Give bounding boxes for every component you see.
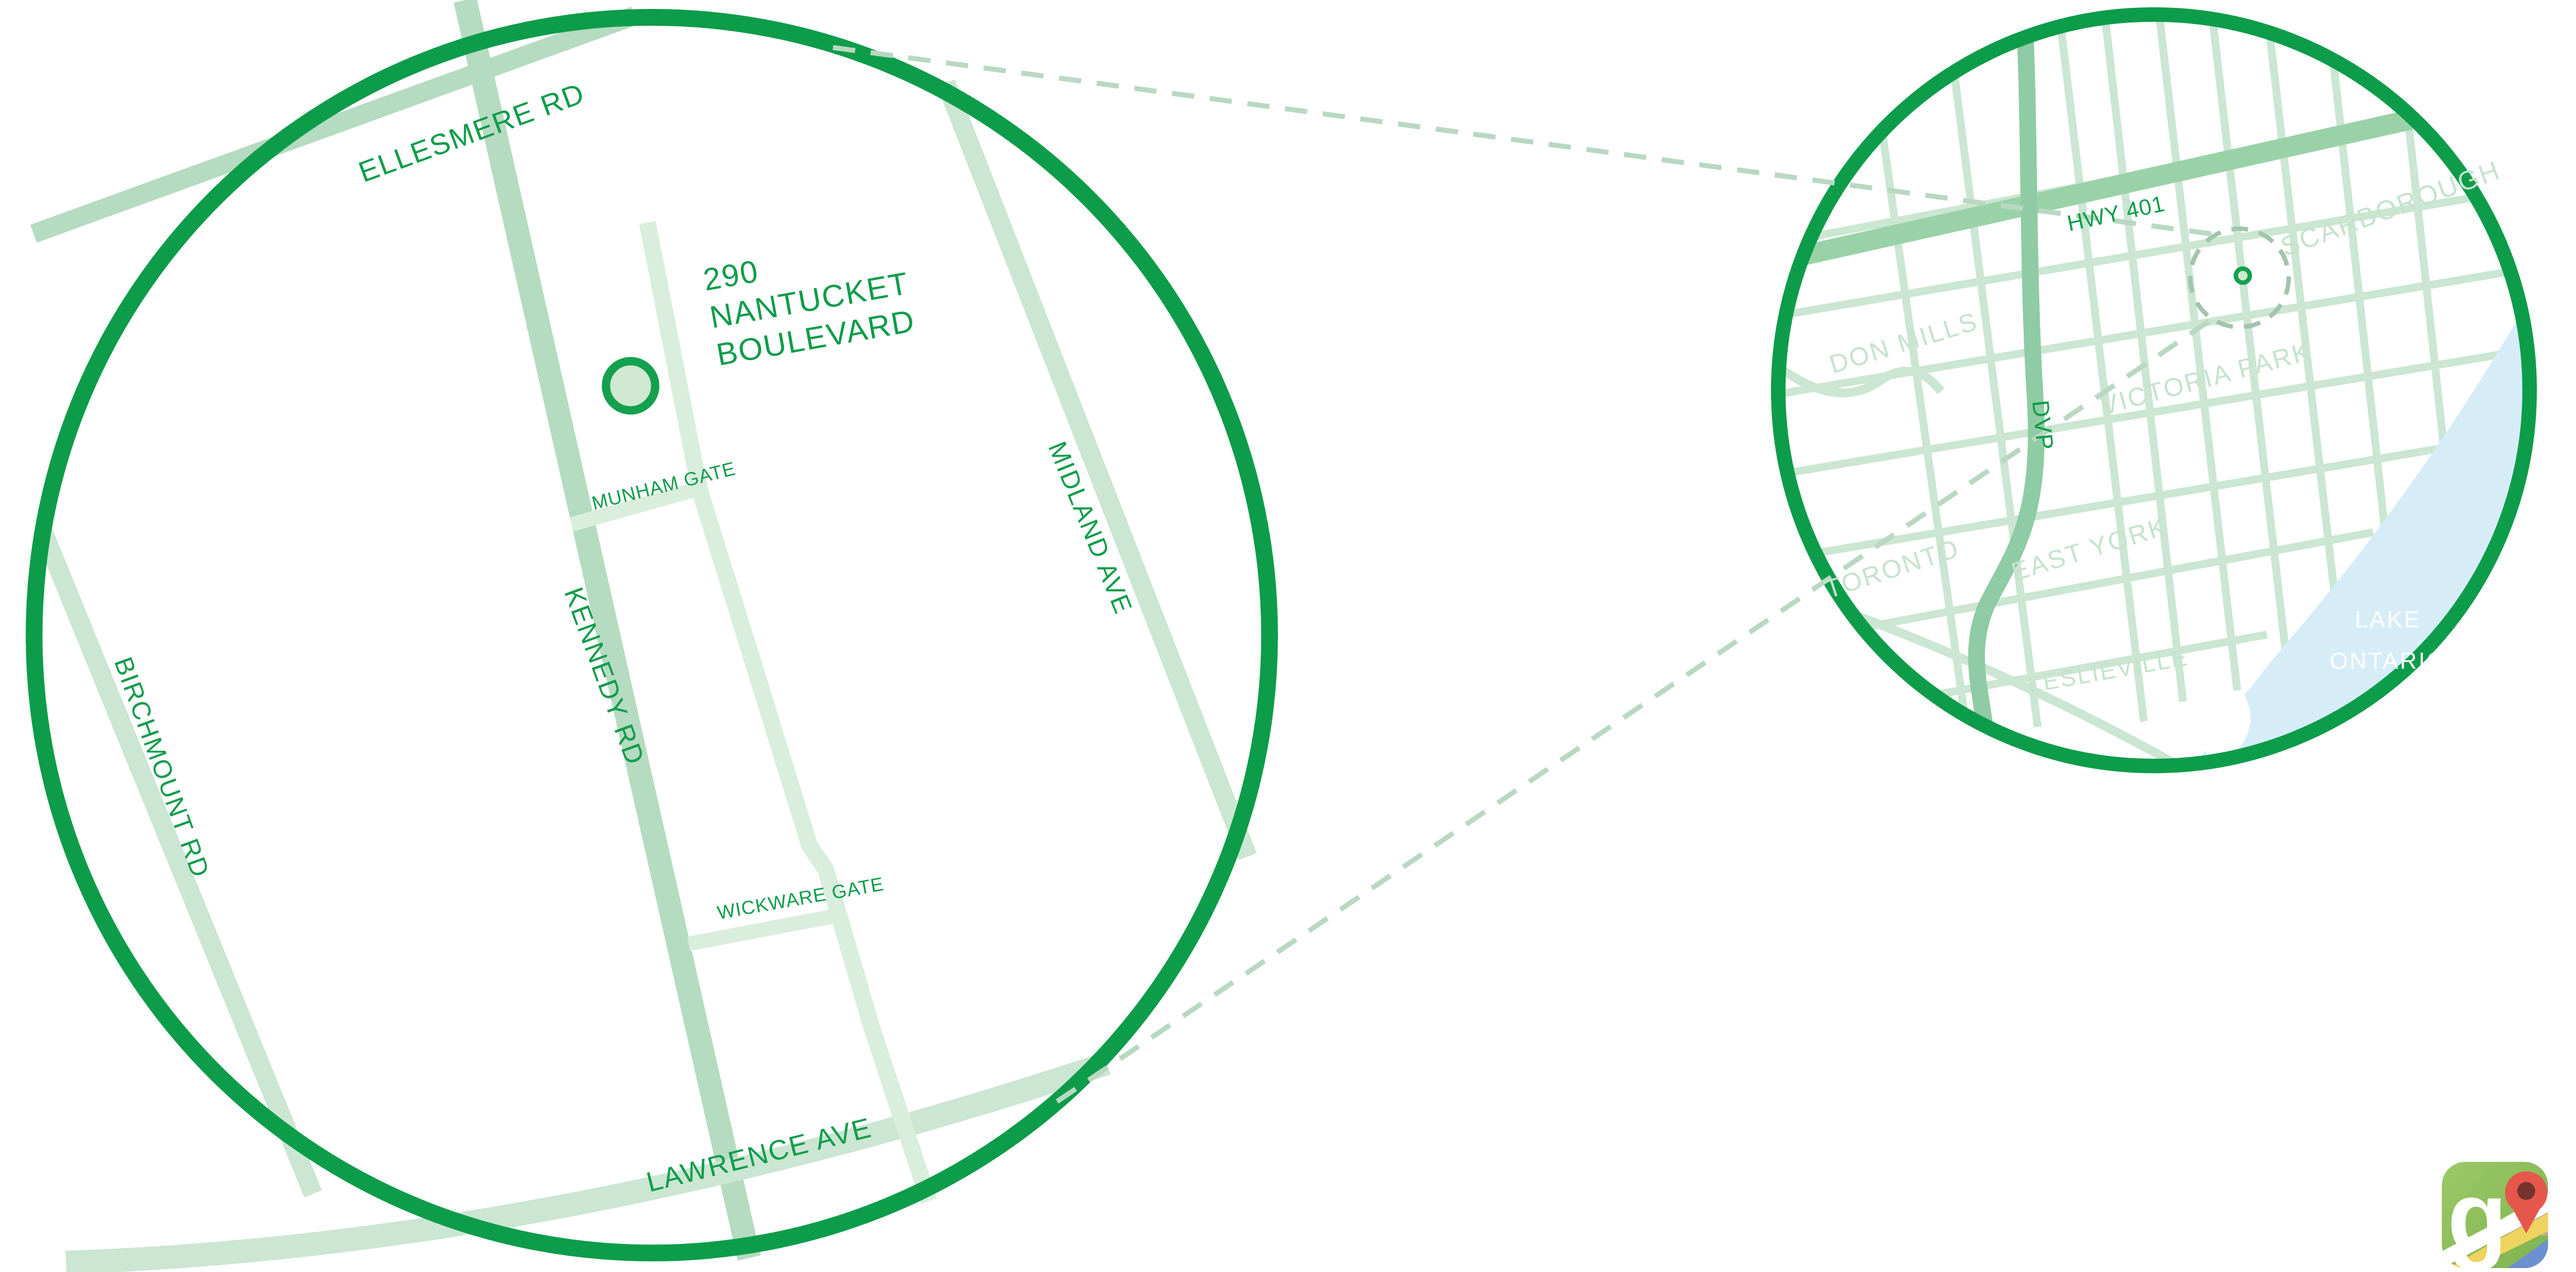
- label-lake-line2: ONTARIO: [2329, 647, 2446, 674]
- property-marker: [606, 361, 655, 410]
- label-lake-line1: LAKE: [2355, 606, 2421, 632]
- overview-property-marker: [2236, 269, 2250, 283]
- detail-map: ELLESMERE RD 290 NANTUCKET BOULEVARD MUN…: [34, 0, 1270, 1262]
- location-map-graphic: ELLESMERE RD 290 NANTUCKET BOULEVARD MUN…: [0, 0, 2576, 1272]
- icon-google-g: g: [2447, 1162, 2507, 1271]
- label-dvp: DVP: [2027, 399, 2058, 452]
- google-maps-icon[interactable]: g: [2442, 1162, 2548, 1271]
